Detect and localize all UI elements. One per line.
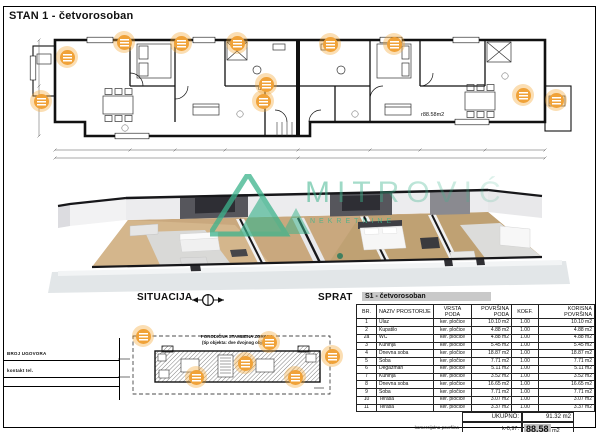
table-cell: ker. pločice xyxy=(434,373,472,381)
commercial-value-cell: 88.58 m2 xyxy=(522,422,574,432)
table-row: 6Degažmanker. pločice5.11 m21.005.11 m2 xyxy=(357,365,595,373)
header-koef: KOEF. xyxy=(512,305,539,319)
table-cell: 3 xyxy=(357,342,377,350)
table-row: 9Sobaker. pločice7.71 m21.007.71 m2 xyxy=(357,389,595,397)
annotation-marker-icon[interactable] xyxy=(321,345,343,367)
commercial-coef: k-0,97: xyxy=(462,422,522,432)
table-cell: 1.00 xyxy=(512,373,539,381)
table-row: 3Kuhinjaker. pločice5.45 m21.005.45 m2 xyxy=(357,342,595,350)
table-cell: 1.00 xyxy=(512,327,539,335)
table-cell: 1.00 xyxy=(512,365,539,373)
annotation-marker-icon[interactable] xyxy=(56,46,78,68)
table-cell: 1.00 xyxy=(512,389,539,397)
marker-lines-icon xyxy=(230,36,245,51)
table-cell: Dnevna soba xyxy=(377,381,434,389)
table-cell: 8 xyxy=(357,381,377,389)
annotation-marker-icon[interactable] xyxy=(226,32,248,54)
table-cell: 1.00 xyxy=(512,342,539,350)
table-cell: 10 xyxy=(357,396,377,404)
table-cell: ker. pločice xyxy=(434,327,472,335)
table-cell: 4.88 m2 xyxy=(472,327,512,335)
marker-lines-icon xyxy=(174,36,189,51)
area-table-grid: BR. NAZIV PROSTORIJE VRSTA PODA POVRŠINA… xyxy=(356,304,595,412)
table-cell: 5 xyxy=(357,358,377,366)
table-title: S1 - četvorosoban xyxy=(362,292,491,301)
table-cell: ker. pločice xyxy=(434,389,472,397)
marker-lines-icon xyxy=(516,88,531,103)
area-table-head: BR. NAZIV PROSTORIJE VRSTA PODA POVRŠINA… xyxy=(357,305,595,319)
table-cell: 7.71 m2 xyxy=(472,358,512,366)
table-cell: ker. pločice xyxy=(434,381,472,389)
header-korisna: KORISNA POVRŠINA xyxy=(539,305,595,319)
table-cell: 2a xyxy=(357,334,377,342)
annotation-marker-icon[interactable] xyxy=(185,366,207,388)
table-cell: WC xyxy=(377,334,434,342)
table-cell: 3.37 m2 xyxy=(539,404,595,412)
marker-lines-icon xyxy=(323,37,338,52)
table-cell: 5.11 m2 xyxy=(472,365,512,373)
table-row: 11Terasaker. pločice3.37 m21.003.37 m2 xyxy=(357,404,595,412)
table-cell: 7 xyxy=(357,373,377,381)
total-row: UKUPNO: 91.32 m2 xyxy=(356,412,574,422)
table-cell: 7.71 m2 xyxy=(472,389,512,397)
contact-phone-line xyxy=(4,377,119,378)
header-br: BR. xyxy=(357,305,377,319)
table-row: 1Ulazker. pločice10.10 m21.0010.10 m2 xyxy=(357,319,595,327)
contact-phone-label: kontakt tel. xyxy=(7,368,33,373)
annotation-marker-icon[interactable] xyxy=(113,31,135,53)
commercial-value: 88.58 xyxy=(524,424,551,432)
table-cell: 1 xyxy=(357,319,377,327)
table-cell: 3.52 m2 xyxy=(472,373,512,381)
table-cell: Terasa xyxy=(377,404,434,412)
annotation-marker-icon[interactable] xyxy=(383,33,405,55)
table-row: 7Kuhinjaker. pločice3.52 m21.003.52 m2 xyxy=(357,373,595,381)
header-naziv: NAZIV PROSTORIJE xyxy=(377,305,434,319)
annotation-marker-icon[interactable] xyxy=(252,90,274,112)
table-cell: ker. pločice xyxy=(434,342,472,350)
table-cell: 1.00 xyxy=(512,396,539,404)
plan-area-label: r88.58m2 xyxy=(421,112,444,118)
drawing-sheet: STAN 1 - četvorosoban xyxy=(0,0,600,432)
table-cell: 3.07 m2 xyxy=(539,396,595,404)
plan-stairs xyxy=(277,122,292,136)
total-value: 91.32 m2 xyxy=(522,412,574,422)
marker-lines-icon xyxy=(387,37,402,52)
annotation-marker-icon[interactable] xyxy=(319,33,341,55)
annotation-marker-icon[interactable] xyxy=(234,352,256,374)
annotation-marker-icon[interactable] xyxy=(545,89,567,111)
table-cell: 4.88 m2 xyxy=(472,334,512,342)
table-cell: 1.00 xyxy=(512,404,539,412)
annotation-marker-icon[interactable] xyxy=(258,331,280,353)
table-cell: Degažman xyxy=(377,365,434,373)
table-row: 10Terasaker. pločice3.07 m21.003.07 m2 xyxy=(357,396,595,404)
marker-lines-icon xyxy=(256,94,271,109)
table-cell: ker. pločice xyxy=(434,334,472,342)
annotation-marker-icon[interactable] xyxy=(30,90,52,112)
header-povrsina: POVRŠINA PODA xyxy=(472,305,512,319)
table-cell: Ulaz xyxy=(377,319,434,327)
table-cell: 7.71 m2 xyxy=(539,358,595,366)
table-cell: 16.65 m2 xyxy=(472,381,512,389)
site-plan-caption-line2: (tip objekta: dve dvojnog objekta) xyxy=(167,340,307,346)
table-cell: Soba xyxy=(377,358,434,366)
annotation-marker-icon[interactable] xyxy=(512,84,534,106)
table-cell: Kuhinja xyxy=(377,373,434,381)
commercial-row: komercijalna površina k-0,97: 88.58 m2 xyxy=(356,422,574,432)
render-3d xyxy=(30,168,575,293)
commercial-unit: m2 xyxy=(552,428,560,432)
marker-lines-icon xyxy=(325,349,340,364)
situacija-title: SITUACIJA xyxy=(137,292,192,303)
table-cell: 1.00 xyxy=(512,319,539,327)
total-row-spacer xyxy=(356,412,462,422)
marker-lines-icon xyxy=(34,94,49,109)
table-cell: 7.71 m2 xyxy=(539,389,595,397)
table-cell: 10.10 m2 xyxy=(472,319,512,327)
table-cell: 4 xyxy=(357,350,377,358)
table-cell: 5.45 m2 xyxy=(472,342,512,350)
marker-lines-icon xyxy=(549,93,564,108)
site-plan-caption: PORODIČNA STAMBENA ZGRADA (tip objekta: … xyxy=(167,334,307,345)
table-cell: 16.65 m2 xyxy=(539,381,595,389)
table-cell: Terasa xyxy=(377,396,434,404)
table-cell: 6 xyxy=(357,365,377,373)
marker-lines-icon xyxy=(238,356,253,371)
table-cell: 1.00 xyxy=(512,350,539,358)
header-vrsta: VRSTA PODA xyxy=(434,305,472,319)
table-cell: Soba xyxy=(377,389,434,397)
table-row: 8Dnevna sobaker. pločice16.65 m21.0016.6… xyxy=(357,381,595,389)
compass-icon xyxy=(192,293,224,307)
marker-lines-icon xyxy=(262,335,277,350)
plan-walls xyxy=(33,40,571,136)
marker-lines-icon xyxy=(189,370,204,385)
commercial-label: komercijalna površina xyxy=(356,422,462,432)
table-header-row: BR. NAZIV PROSTORIJE VRSTA PODA POVRŠINA… xyxy=(357,305,595,319)
table-cell: 4.88 m2 xyxy=(539,327,595,335)
table-row: 5Sobaker. pločice7.71 m21.007.71 m2 xyxy=(357,358,595,366)
table-cell: 3.37 m2 xyxy=(472,404,512,412)
table-cell: ker. pločice xyxy=(434,396,472,404)
table-cell: Kuhinja xyxy=(377,342,434,350)
table-cell: 10.10 m2 xyxy=(539,319,595,327)
table-cell: 11 xyxy=(357,404,377,412)
table-cell: 18.87 m2 xyxy=(539,350,595,358)
table-cell: 4.88 m2 xyxy=(539,334,595,342)
plan-dimension-lines xyxy=(38,39,547,160)
annotation-marker-icon[interactable] xyxy=(132,325,154,347)
table-cell: ker. pločice xyxy=(434,358,472,366)
marker-lines-icon xyxy=(117,35,132,50)
table-cell: 1.00 xyxy=(512,334,539,342)
table-cell: 3.07 m2 xyxy=(472,396,512,404)
floor-plan: ulaz r88.58m2 xyxy=(25,26,580,168)
table-row: 4Dnevna sobaker. pločice18.87 m21.0018.8… xyxy=(357,350,595,358)
contract-number-label: BROJ UGOVORA xyxy=(7,351,46,356)
annotation-marker-icon[interactable] xyxy=(170,32,192,54)
table-cell: Dnevna soba xyxy=(377,350,434,358)
table-cell: ker. pločice xyxy=(434,319,472,327)
area-table-body: 1Ulazker. pločice10.10 m21.0010.10 m22Ku… xyxy=(357,319,595,412)
table-cell: ker. pločice xyxy=(434,365,472,373)
table-cell: 3.52 m2 xyxy=(539,373,595,381)
table-cell: 9 xyxy=(357,389,377,397)
table-row: 2aWCker. pločice4.88 m21.004.88 m2 xyxy=(357,334,595,342)
table-cell: 2 xyxy=(357,327,377,335)
table-row: 2Kupatiloker. pločice4.88 m21.004.88 m2 xyxy=(357,327,595,335)
table-cell: Kupatilo xyxy=(377,327,434,335)
page-title: STAN 1 - četvorosoban xyxy=(9,10,133,22)
contract-number-line xyxy=(4,360,119,361)
annotation-marker-icon[interactable] xyxy=(284,366,306,388)
table-cell: 5.11 m2 xyxy=(539,365,595,373)
area-table: S1 - četvorosoban BR. NAZIV PROSTORIJE V… xyxy=(356,292,574,432)
table-cell: ker. pločice xyxy=(434,350,472,358)
table-cell: 1.00 xyxy=(512,381,539,389)
table-cell: 18.87 m2 xyxy=(472,350,512,358)
table-cell: ker. pločice xyxy=(434,404,472,412)
marker-lines-icon xyxy=(136,329,151,344)
table-cell: 5.45 m2 xyxy=(539,342,595,350)
marker-lines-icon xyxy=(288,370,303,385)
total-label: UKUPNO: xyxy=(462,412,522,422)
titleblock-line xyxy=(4,386,119,387)
table-cell: 1.00 xyxy=(512,358,539,366)
marker-lines-icon xyxy=(60,50,75,65)
sprat-title: SPRAT xyxy=(318,292,353,303)
